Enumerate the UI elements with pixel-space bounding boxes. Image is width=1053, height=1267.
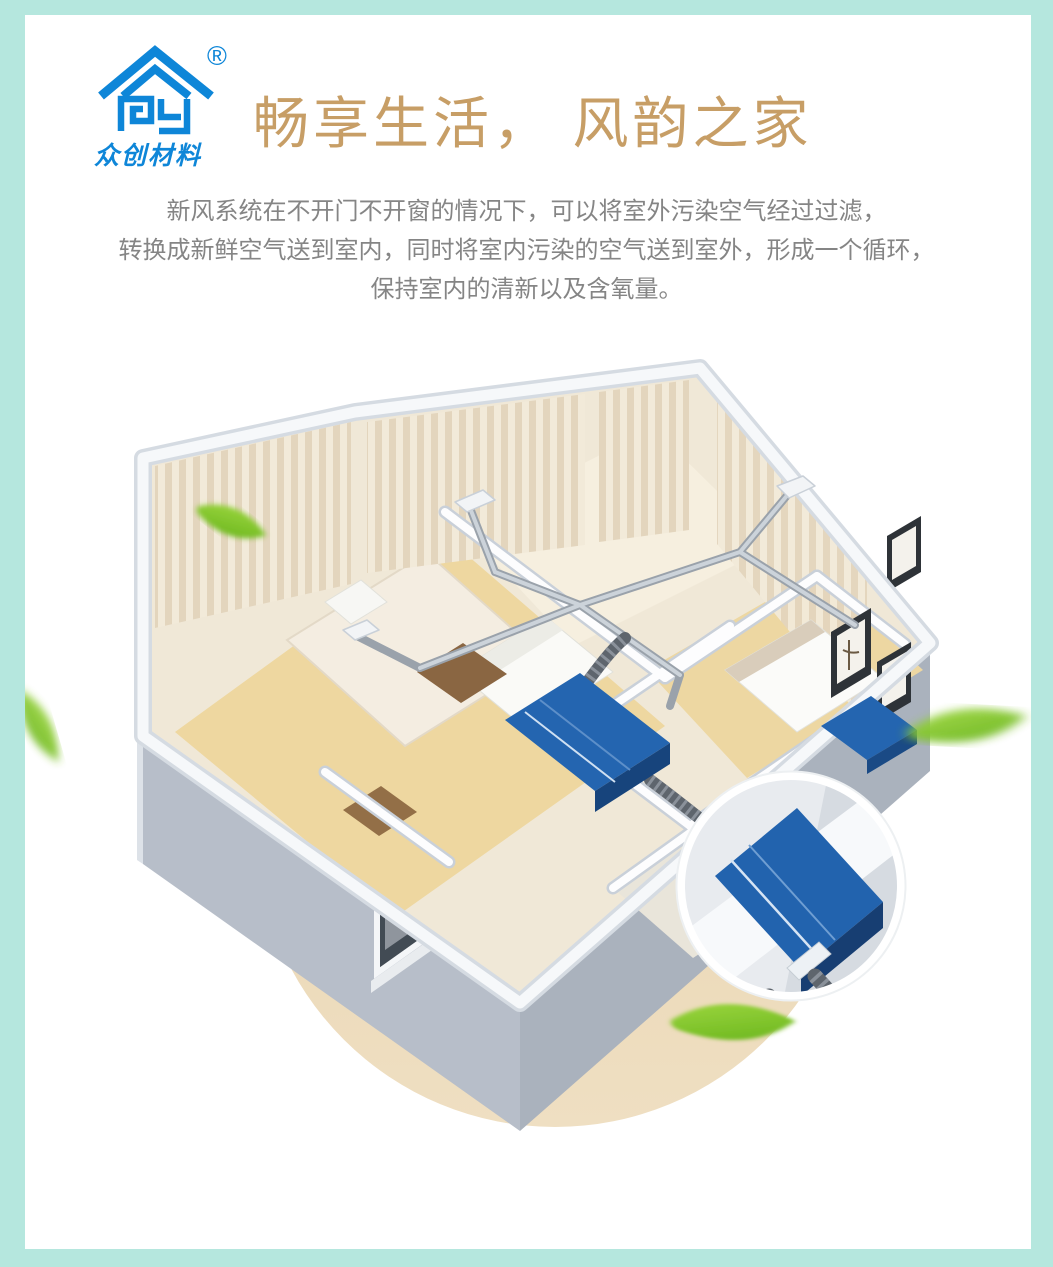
logo-y-glyph <box>159 99 187 131</box>
leaf-left-icon <box>25 685 62 767</box>
intro-line-3: 保持室内的清新以及含氧量。 <box>0 270 1053 309</box>
house-logo-icon: ® <box>95 40 230 137</box>
ventilation-system-illustration <box>25 340 1031 1255</box>
house-cutaway <box>137 368 930 1131</box>
logo-spiral-glyph <box>121 99 151 131</box>
page: { "page": { "background_color": "#ffffff… <box>0 0 1053 1267</box>
page-title: 畅享生活， 风韵之家 <box>253 90 813 158</box>
intro-line-2: 转换成新鲜空气送到室内，同时将室内污染的空气送到室外，形成一个循环， <box>0 231 1053 270</box>
brand-name: 众创材料 <box>94 136 254 172</box>
registered-mark: ® <box>207 41 227 71</box>
intro-paragraph: 新风系统在不开门不开窗的情况下，可以将室外污染空气经过过滤， 转换成新鲜空气送到… <box>0 192 1053 309</box>
intro-line-1: 新风系统在不开门不开窗的情况下，可以将室外污染空气经过过滤， <box>0 192 1053 231</box>
